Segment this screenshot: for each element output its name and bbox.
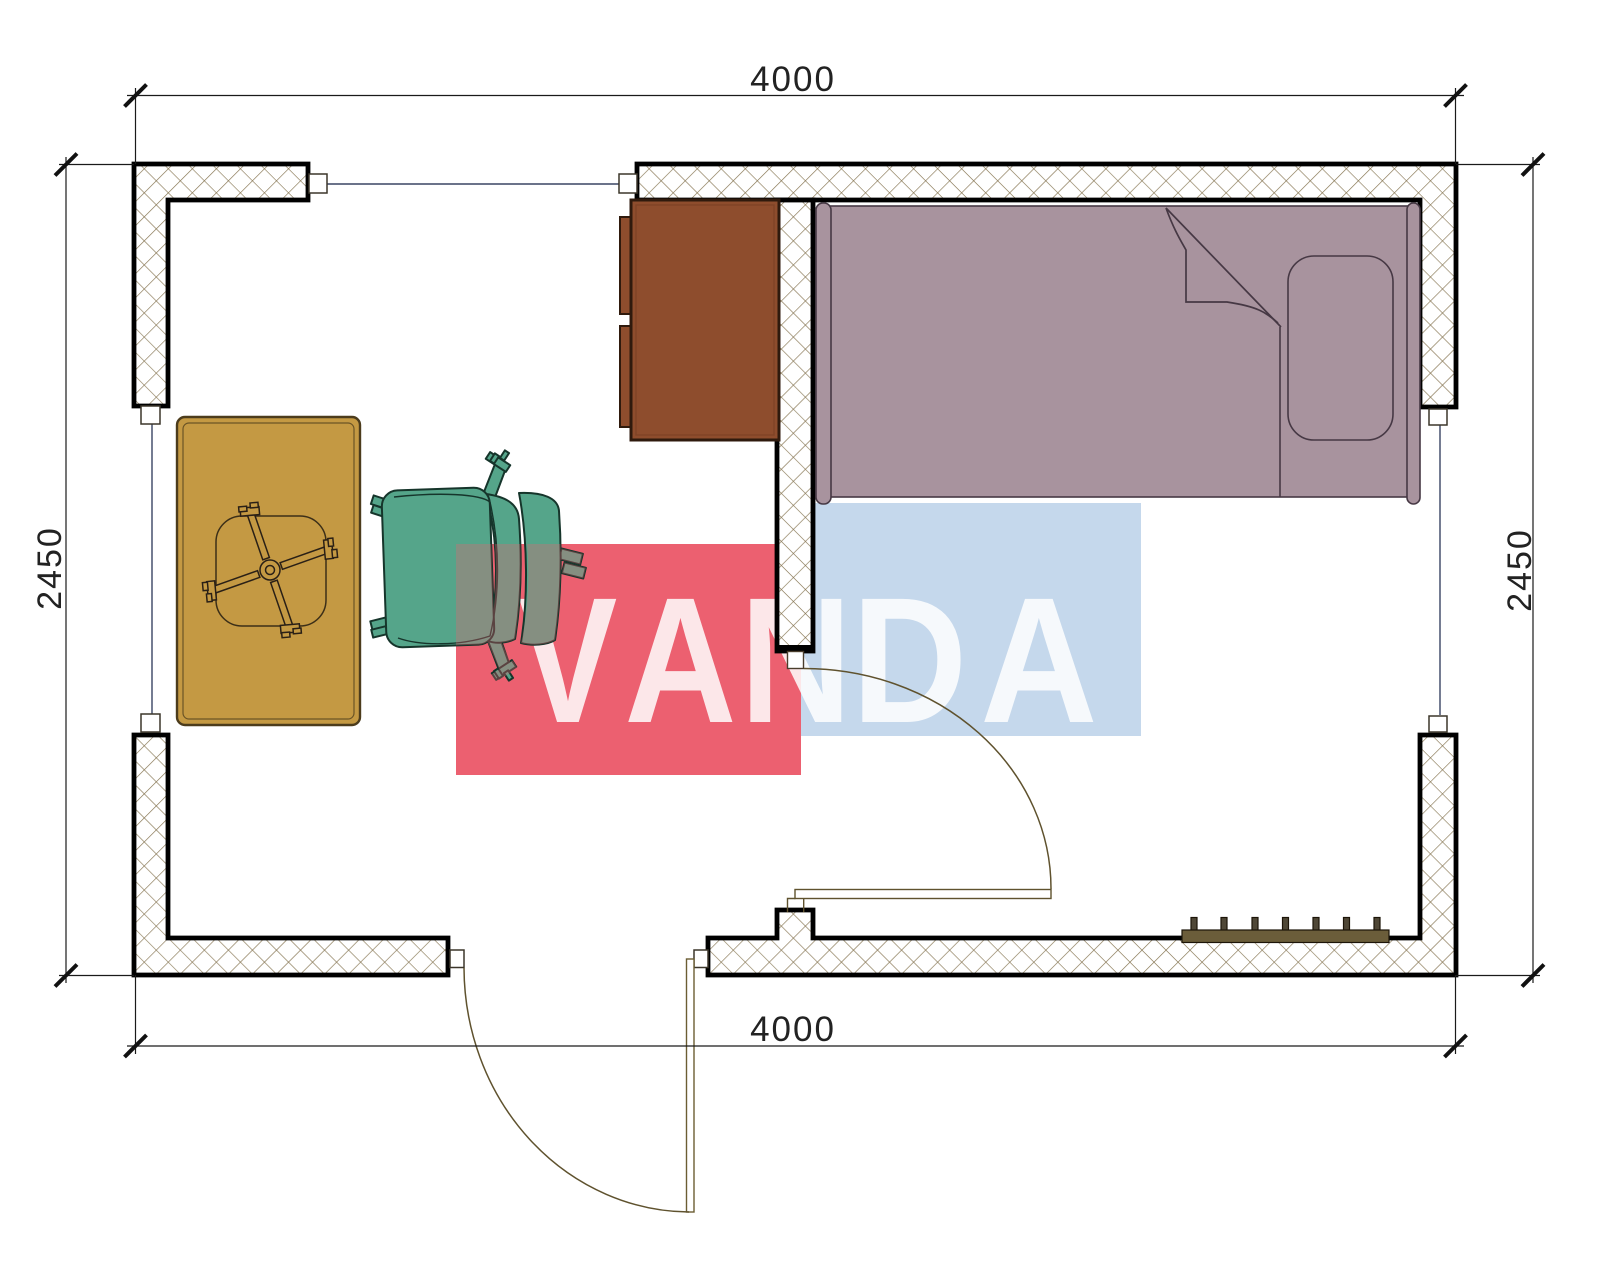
svg-text:2450: 2450 <box>1501 528 1539 612</box>
svg-text:4000: 4000 <box>750 60 836 99</box>
svg-text:A: A <box>980 561 1097 761</box>
svg-text:D: D <box>852 560 968 760</box>
svg-text:2450: 2450 <box>31 526 69 610</box>
svg-text:A: A <box>624 561 736 761</box>
svg-text:4000: 4000 <box>750 1010 836 1049</box>
